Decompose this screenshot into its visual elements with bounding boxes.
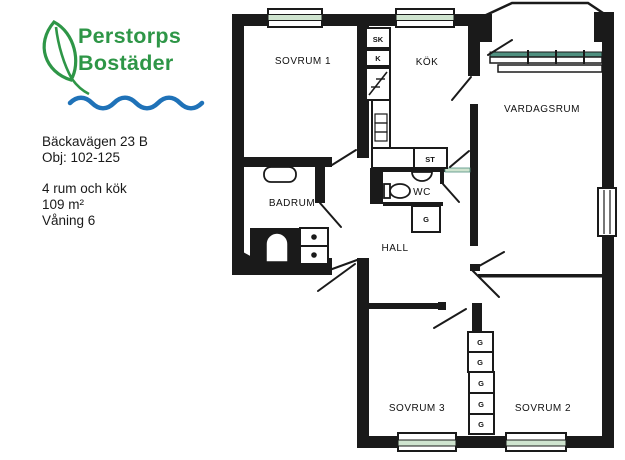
room-label-sovrum3: SOVRUM 3 <box>389 403 445 414</box>
door-vardagsrum <box>472 252 504 270</box>
closet-label-g: G <box>478 420 484 429</box>
closet-label-g: G <box>477 358 483 367</box>
closet-label-g: G <box>478 379 484 388</box>
window-kok <box>396 9 454 27</box>
door-sovrum1 <box>332 150 356 165</box>
bathroom-sink-icon <box>264 167 296 182</box>
window-balcony-row <box>490 50 602 72</box>
closet-label-g: G <box>478 400 484 409</box>
door-sovrum3 <box>434 309 466 328</box>
closet-label-k: K <box>375 54 381 63</box>
closet-label-st: ST <box>425 155 435 164</box>
room-label-wc: WC <box>413 187 431 198</box>
wc-sink-icon <box>412 172 432 181</box>
window-sovrum3 <box>398 433 456 451</box>
floorplan-page: Perstorps Bostäder Bäckavägen 23 B Obj: … <box>0 0 625 460</box>
room-label-vardagsrum: VARDAGSRUM <box>504 104 580 115</box>
stove-icon <box>366 68 390 100</box>
door-swings <box>318 40 512 328</box>
closet-label-g: G <box>423 215 429 224</box>
closet-label-g: G <box>477 338 483 347</box>
glazed-strip <box>445 168 470 172</box>
window-east <box>598 188 616 236</box>
kitchen-counter <box>372 100 414 168</box>
room-label-sovrum2: SOVRUM 2 <box>515 403 571 414</box>
balcony-outline <box>484 3 606 16</box>
closet-pair-badrum <box>300 228 328 264</box>
room-label-badrum: BADRUM <box>269 198 315 209</box>
wc-toilet-icon <box>384 184 410 198</box>
door-badrum <box>320 203 341 227</box>
closet-label-sk: SK <box>373 35 384 44</box>
room-label-hall: HALL <box>381 243 408 254</box>
room-label-sovrum1: SOVRUM 1 <box>275 56 331 67</box>
door-kok-vardagsrum <box>452 77 471 100</box>
room-label-kok: KÖK <box>416 56 439 68</box>
toilet-icon <box>266 233 288 262</box>
door-wc <box>443 184 459 202</box>
floor-plan: SOVRUM 1 KÖK VARDAGSRUM BADRUM WC HALL S… <box>0 0 625 460</box>
window-sovrum2 <box>506 433 566 451</box>
closets-and-counters <box>300 28 494 434</box>
door-kok-hall <box>450 151 469 167</box>
window-sovrum1 <box>268 9 322 27</box>
